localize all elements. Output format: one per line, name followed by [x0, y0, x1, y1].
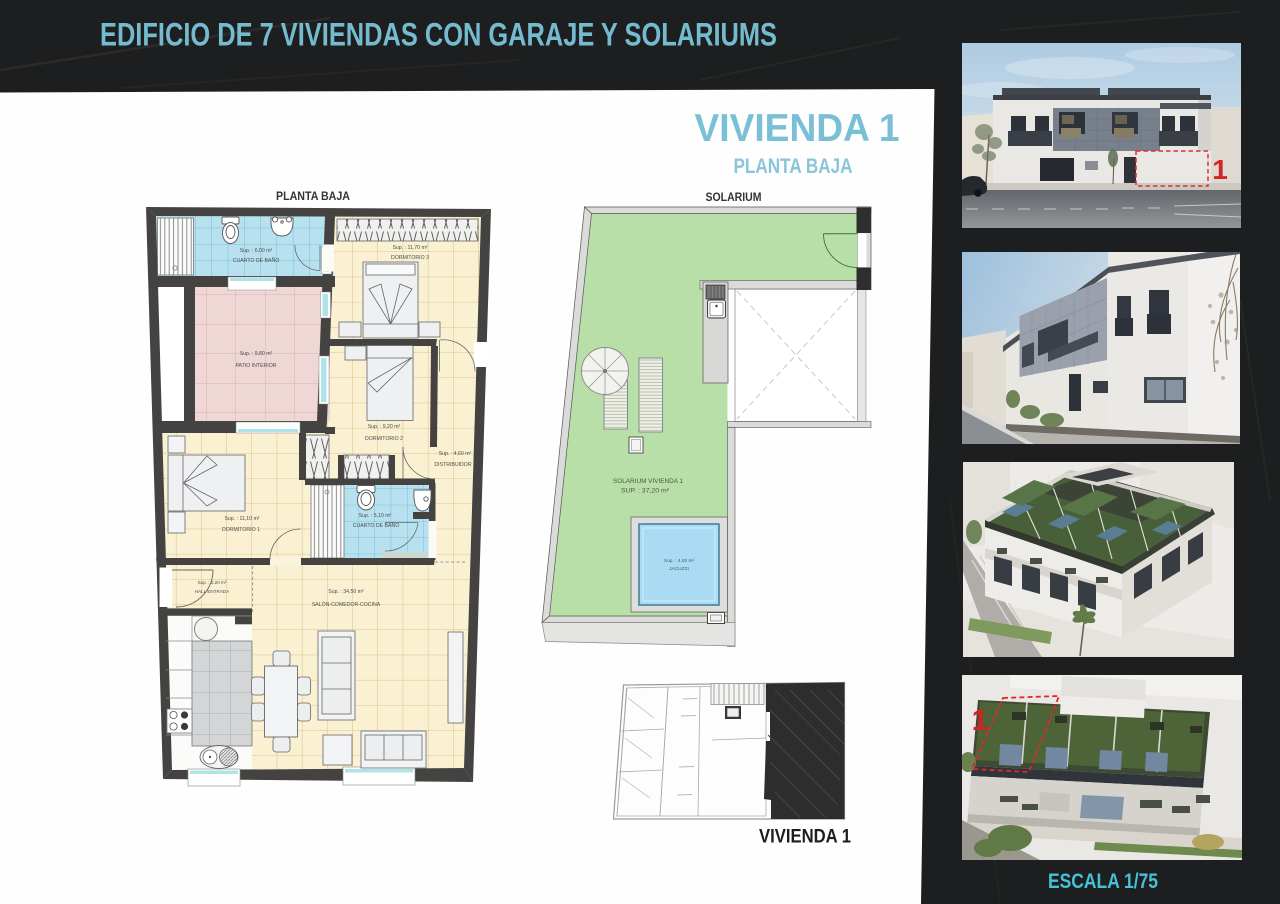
svg-text:CUARTO DE BAÑO: CUARTO DE BAÑO [233, 257, 280, 264]
svg-text:SOLARIUM VIVIENDA 1: SOLARIUM VIVIENDA 1 [613, 479, 684, 485]
svg-text:Sup. : 11,70 m²: Sup. : 11,70 m² [392, 245, 427, 251]
svg-text:Sup. : 5,10 m²: Sup. : 5,10 m² [359, 513, 392, 519]
svg-text:EDIFICIO DE 7 VIVIENDAS CON GA: EDIFICIO DE 7 VIVIENDAS CON GARAJE Y SOL… [100, 17, 777, 53]
svg-text:1: 1 [1212, 154, 1228, 185]
svg-text:DORMITORIO 1: DORMITORIO 1 [222, 527, 260, 533]
svg-text:SOLARIUM: SOLARIUM [706, 190, 762, 204]
svg-text:VIVIENDA 1: VIVIENDA 1 [695, 107, 900, 150]
svg-text:DORMITORIO 3: DORMITORIO 3 [391, 255, 429, 261]
svg-text:CUARTO DE BAÑO: CUARTO DE BAÑO [353, 522, 400, 529]
svg-text:SUP. : 37,20 m²: SUP. : 37,20 m² [621, 489, 669, 495]
svg-text:Sup. : 2,20 m²: Sup. : 2,20 m² [198, 580, 227, 585]
svg-text:Sup. : 9,20 m²: Sup. : 9,20 m² [368, 424, 401, 430]
svg-text:1: 1 [972, 704, 989, 737]
svg-text:Sup. : 4,60 m²: Sup. : 4,60 m² [439, 451, 472, 457]
svg-text:VIVIENDA 1: VIVIENDA 1 [759, 826, 851, 848]
svg-text:DISTRIBUIDOR: DISTRIBUIDOR [434, 462, 471, 468]
svg-text:PATIO INTERIOR: PATIO INTERIOR [235, 363, 276, 369]
svg-text:JACUZZI: JACUZZI [669, 566, 689, 572]
svg-text:ESCALA 1/75: ESCALA 1/75 [1048, 870, 1158, 893]
svg-text:Sup. : 34,50 m²: Sup. : 34,50 m² [328, 589, 364, 595]
svg-text:SALÓN-COMEDOR-COCINA: SALÓN-COMEDOR-COCINA [312, 601, 381, 608]
svg-text:Sup. : 11,10 m²: Sup. : 11,10 m² [224, 516, 259, 522]
svg-text:Sup. : 9,80 m²: Sup. : 9,80 m² [240, 351, 273, 357]
svg-text:Sup. : 6,00 m²: Sup. : 6,00 m² [240, 248, 273, 254]
svg-text:DORMITORIO 2: DORMITORIO 2 [365, 436, 403, 442]
svg-text:PLANTA BAJA: PLANTA BAJA [276, 189, 350, 203]
svg-text:Sup. : 4,00 m²: Sup. : 4,00 m² [664, 558, 695, 564]
svg-text:HALL ENTRADA: HALL ENTRADA [195, 589, 230, 594]
svg-text:PLANTA BAJA: PLANTA BAJA [734, 155, 853, 178]
